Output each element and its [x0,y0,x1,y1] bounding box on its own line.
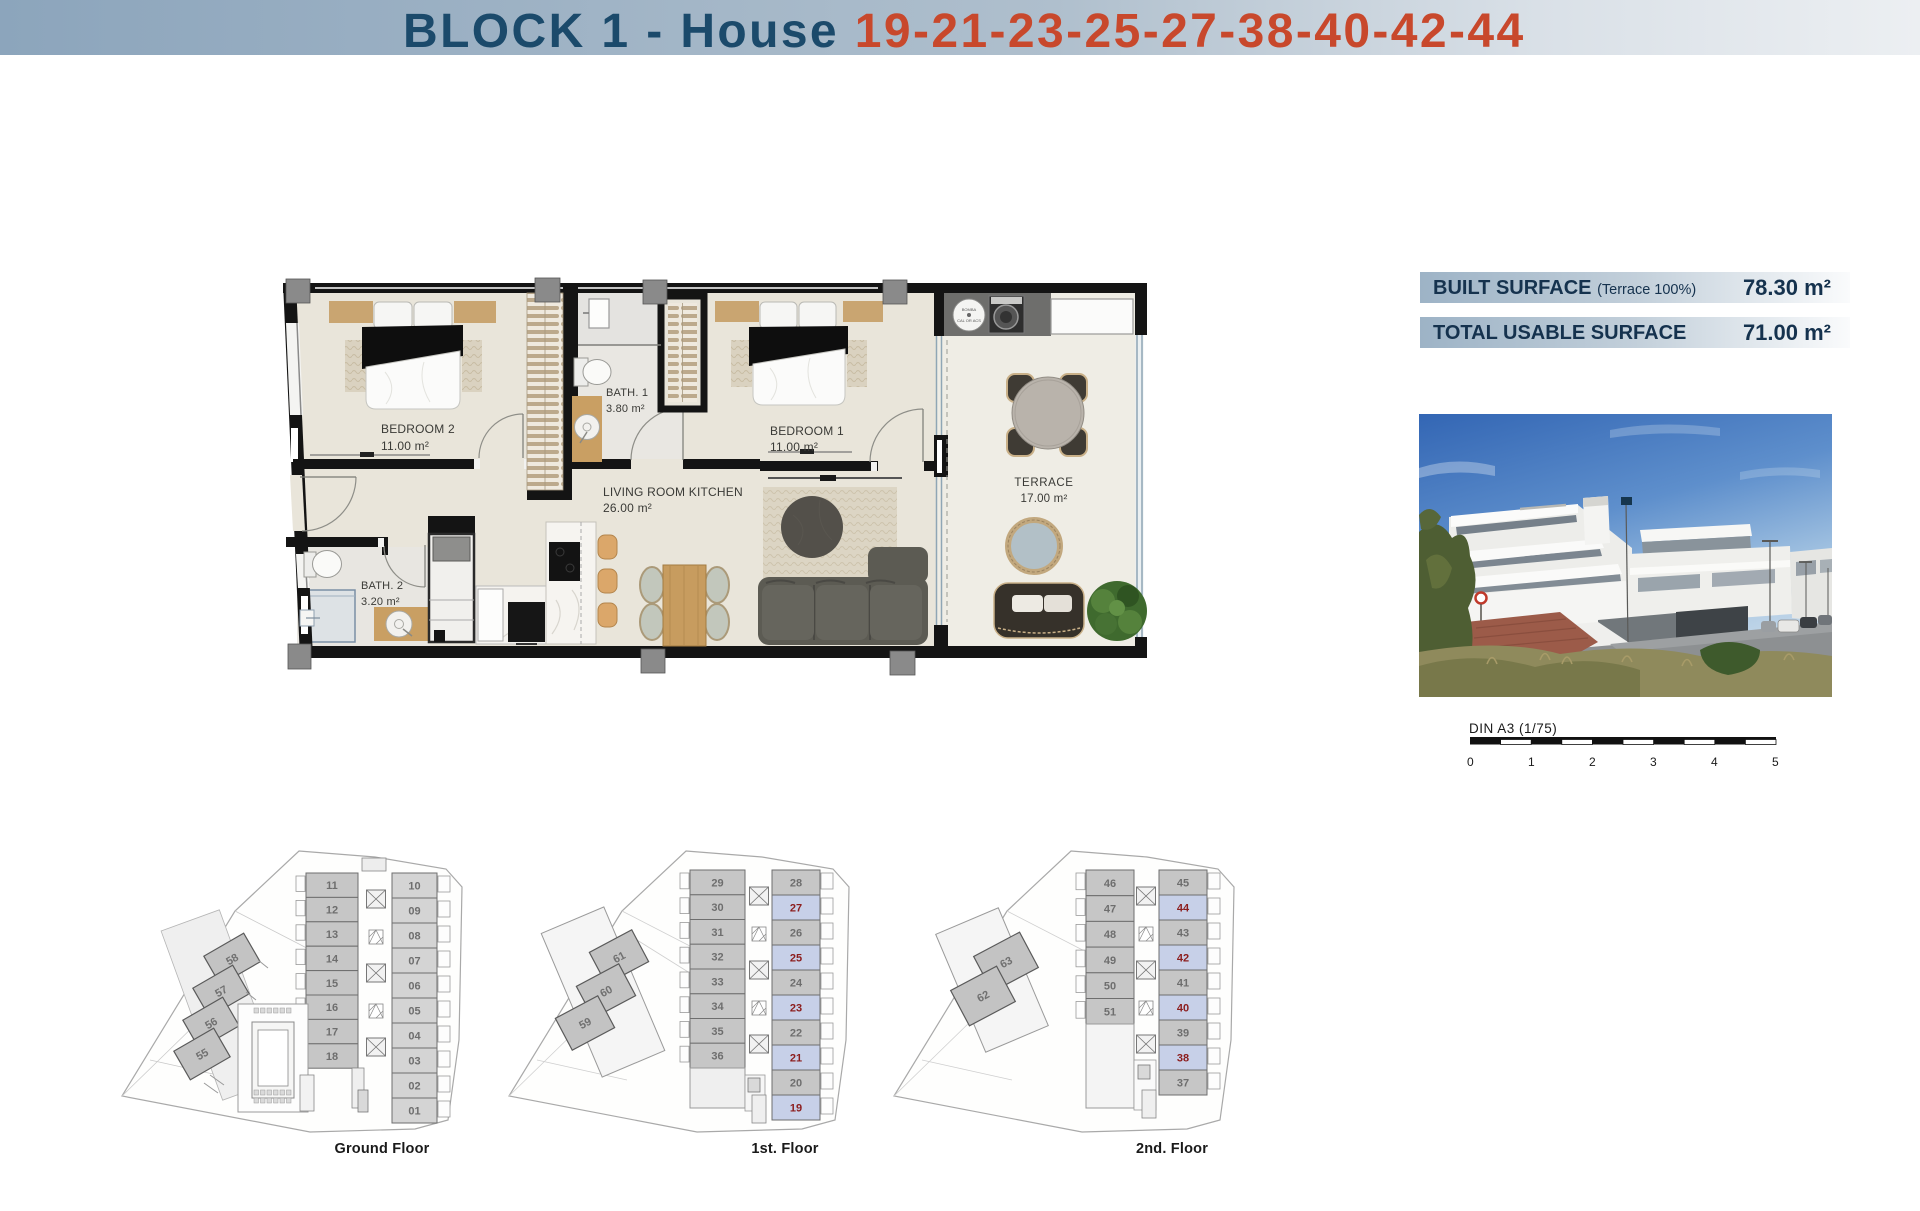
svg-text:LIVING ROOM KITCHEN: LIVING ROOM KITCHEN [603,485,743,499]
svg-text:38: 38 [1177,1053,1189,1065]
svg-text:03: 03 [408,1056,420,1068]
svg-text:0: 0 [1467,755,1474,769]
svg-text:41: 41 [1177,978,1189,990]
svg-text:Ground Floor: Ground Floor [334,1141,429,1157]
svg-text:1st. Floor: 1st. Floor [751,1141,818,1157]
svg-text:2nd. Floor: 2nd. Floor [1136,1141,1208,1157]
svg-text:36: 36 [711,1051,723,1063]
svg-text:17: 17 [326,1027,338,1039]
svg-text:29: 29 [711,877,723,889]
svg-text:19: 19 [790,1103,802,1115]
svg-text:10: 10 [408,881,420,893]
svg-text:50: 50 [1104,981,1116,993]
svg-text:37: 37 [1177,1078,1189,1090]
svg-text:28: 28 [790,878,802,890]
svg-text:39: 39 [1177,1028,1189,1040]
svg-text:45: 45 [1177,878,1189,890]
svg-text:2: 2 [1589,755,1596,769]
svg-text:3: 3 [1650,755,1657,769]
svg-text:09: 09 [408,906,420,918]
svg-text:02: 02 [408,1081,420,1093]
svg-text:3.80 m²: 3.80 m² [606,403,645,415]
svg-text:48: 48 [1104,929,1116,941]
svg-text:46: 46 [1104,878,1116,890]
svg-text:BEDROOM 1: BEDROOM 1 [770,424,844,438]
svg-text:BLOCK 1 - House 19-21-23-25-27: BLOCK 1 - House 19-21-23-25-27-38-40-42-… [403,5,1526,58]
svg-text:35: 35 [711,1026,723,1038]
svg-text:15: 15 [326,978,338,990]
svg-text:30: 30 [711,902,723,914]
svg-text:BATH. 1: BATH. 1 [606,387,648,399]
svg-text:5: 5 [1772,755,1779,769]
svg-text:43: 43 [1177,928,1189,940]
svg-text:71.00 m²: 71.00 m² [1743,320,1831,345]
svg-text:11.00 m²: 11.00 m² [770,440,818,454]
svg-text:4: 4 [1711,755,1718,769]
svg-text:21: 21 [790,1053,802,1065]
svg-text:DIN A3 (1/75): DIN A3 (1/75) [1469,721,1557,736]
svg-text:11.00 m²: 11.00 m² [381,439,429,453]
svg-text:05: 05 [408,1006,420,1018]
svg-text:3.20 m²: 3.20 m² [361,596,400,608]
svg-text:34: 34 [711,1001,724,1013]
svg-text:04: 04 [408,1031,421,1043]
svg-text:14: 14 [326,953,339,965]
svg-text:07: 07 [408,956,420,968]
svg-text:44: 44 [1177,903,1190,915]
svg-text:24: 24 [790,978,803,990]
svg-text:BEDROOM 2: BEDROOM 2 [381,422,455,436]
svg-text:32: 32 [711,952,723,964]
svg-text:TOTAL USABLE SURFACE: TOTAL USABLE SURFACE [1433,322,1686,344]
svg-text:33: 33 [711,976,723,988]
svg-text:26.00 m²: 26.00 m² [603,501,652,515]
svg-text:42: 42 [1177,953,1189,965]
svg-text:06: 06 [408,981,420,993]
svg-text:26: 26 [790,928,802,940]
svg-text:47: 47 [1104,904,1116,916]
svg-text:08: 08 [408,931,420,943]
svg-text:01: 01 [408,1106,420,1118]
svg-text:17.00 m²: 17.00 m² [1021,493,1068,505]
svg-text:78.30 m²: 78.30 m² [1743,275,1831,300]
svg-text:TERRACE: TERRACE [1014,477,1073,489]
svg-text:BATH. 2: BATH. 2 [361,580,403,592]
svg-text:11: 11 [326,880,338,892]
svg-text:13: 13 [326,929,338,941]
svg-text:20: 20 [790,1078,802,1090]
svg-text:23: 23 [790,1003,802,1015]
svg-text:CAL OR ACS: CAL OR ACS [957,318,981,323]
svg-text:12: 12 [326,905,338,917]
svg-text:25: 25 [790,953,802,965]
svg-text:49: 49 [1104,955,1116,967]
svg-text:16: 16 [326,1002,338,1014]
svg-text:18: 18 [326,1051,338,1063]
svg-text:40: 40 [1177,1003,1189,1015]
svg-text:22: 22 [790,1028,802,1040]
svg-text:BOMBA: BOMBA [962,307,977,312]
svg-text:1: 1 [1528,755,1535,769]
svg-text:31: 31 [711,927,723,939]
svg-text:27: 27 [790,903,802,915]
svg-text:51: 51 [1104,1006,1116,1018]
